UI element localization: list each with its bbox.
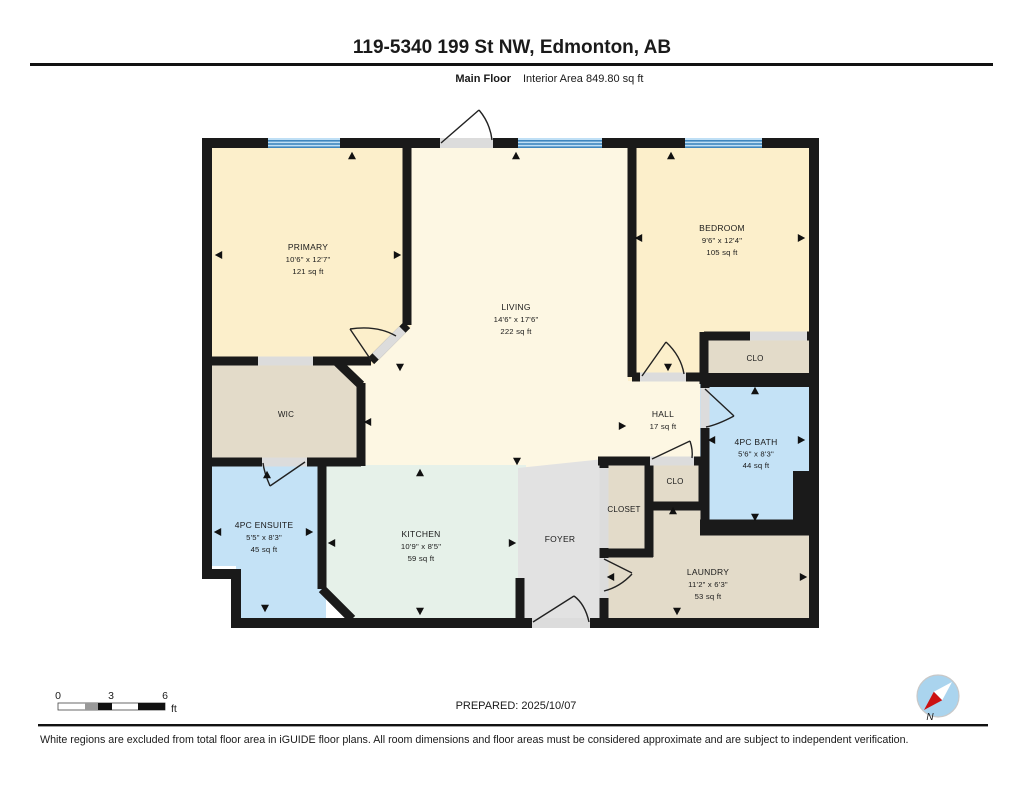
label-closet: CLOSET bbox=[607, 505, 640, 514]
label-hall: HALL bbox=[652, 409, 674, 419]
label-living-area: 222 sq ft bbox=[500, 327, 532, 336]
disclaimer-text: White regions are excluded from total fl… bbox=[40, 734, 909, 746]
label-bedroom-area: 105 sq ft bbox=[706, 248, 738, 257]
label-laundry: LAUNDRY bbox=[687, 567, 729, 577]
compass-icon: N bbox=[917, 675, 959, 723]
window-living bbox=[518, 138, 602, 148]
label-foyer: FOYER bbox=[545, 534, 576, 544]
laundry-door-opening bbox=[600, 558, 609, 598]
label-bedroom-dims: 9'6" x 12'4" bbox=[702, 236, 742, 245]
label-wic: WIC bbox=[278, 410, 294, 419]
bedroom-door-opening bbox=[640, 373, 686, 382]
label-laundry-area: 53 sq ft bbox=[695, 592, 722, 601]
scale-tick-0: 0 bbox=[55, 690, 61, 702]
label-bath-dims: 5'6" x 8'3" bbox=[738, 450, 774, 459]
label-kitchen-area: 59 sq ft bbox=[408, 554, 435, 563]
floor-plan-canvas: 119-5340 199 St NW, Edmonton, AB Main Fl… bbox=[0, 0, 1024, 791]
label-clo-bedroom: CLO bbox=[746, 354, 763, 363]
entry-door-opening bbox=[532, 618, 590, 628]
footer-divider bbox=[38, 724, 988, 726]
window-primary bbox=[268, 138, 340, 148]
label-living: LIVING bbox=[501, 302, 530, 312]
room-primary bbox=[203, 139, 411, 365]
bedroom-clo-opening bbox=[750, 332, 807, 341]
wic-opening bbox=[258, 357, 313, 366]
label-clo-hall: CLO bbox=[666, 477, 683, 486]
bath-door-opening bbox=[701, 388, 710, 428]
label-laundry-dims: 11'2" x 6'3" bbox=[688, 580, 728, 589]
label-ensuite: 4PC ENSUITE bbox=[235, 520, 294, 530]
compass-north-label: N bbox=[926, 712, 934, 723]
header-divider bbox=[30, 63, 993, 66]
label-ensuite-dims: 5'5" x 8'3" bbox=[246, 533, 282, 542]
window-bedroom bbox=[685, 138, 762, 148]
label-kitchen: KITCHEN bbox=[401, 529, 440, 539]
scale-tick-6: 6 bbox=[162, 690, 168, 702]
label-primary-area: 121 sq ft bbox=[292, 267, 324, 276]
label-bath-area: 44 sq ft bbox=[743, 461, 770, 470]
scale-unit-label: ft bbox=[171, 703, 177, 715]
label-primary-dims: 10'6" x 12'7" bbox=[286, 255, 331, 264]
prepared-date: PREPARED: 2025/10/07 bbox=[456, 700, 577, 712]
floor-label: Main Floor bbox=[455, 73, 511, 85]
scale-bar: 0 3 6 ft bbox=[55, 690, 177, 715]
label-living-dims: 14'6" x 17'6" bbox=[494, 315, 539, 324]
label-bath: 4PC BATH bbox=[735, 437, 778, 447]
bath-chase-wall bbox=[793, 471, 814, 528]
interior-area-label: Interior Area 849.80 sq ft bbox=[523, 73, 643, 85]
label-hall-area: 17 sq ft bbox=[650, 422, 677, 431]
balcony-door-opening bbox=[440, 138, 493, 148]
scale-tick-3: 3 bbox=[108, 690, 114, 702]
label-kitchen-dims: 10'9" x 8'5" bbox=[401, 542, 441, 551]
label-bedroom: BEDROOM bbox=[699, 223, 745, 233]
page-title: 119-5340 199 St NW, Edmonton, AB bbox=[353, 37, 671, 58]
label-ensuite-area: 45 sq ft bbox=[251, 545, 278, 554]
label-primary: PRIMARY bbox=[288, 242, 328, 252]
hall-door-opening bbox=[650, 457, 694, 466]
floor-plan-page: 119-5340 199 St NW, Edmonton, AB Main Fl… bbox=[0, 0, 1024, 791]
